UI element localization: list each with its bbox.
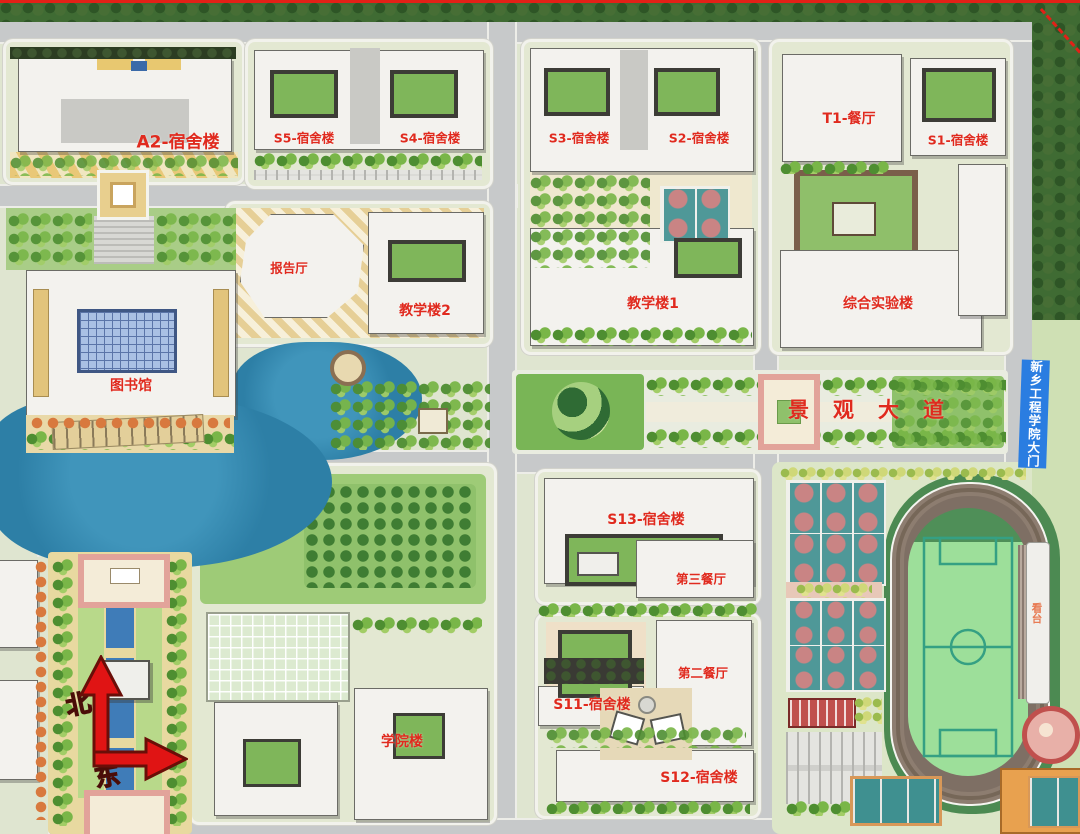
basketball-courts-north xyxy=(786,480,886,586)
label-a2: A2-宿舍楼 xyxy=(136,128,219,153)
avenue-swirl-park xyxy=(516,374,644,450)
block-lecture-teaching2 xyxy=(228,204,490,344)
pavilion-core xyxy=(110,568,140,584)
soccer-pitch-markings xyxy=(910,532,1026,762)
building-connector xyxy=(620,50,648,150)
college-west-court xyxy=(243,739,301,787)
axis-plaza xyxy=(97,170,149,220)
campus-map: 新乡工程学院大门 xyxy=(0,0,1080,834)
round-plaza-southeast xyxy=(1022,706,1080,764)
west-edge-orange-trees xyxy=(34,560,48,820)
forecourt-trees xyxy=(156,212,236,266)
forecourt-steps xyxy=(94,216,154,264)
pavilion-shrubs xyxy=(854,696,882,724)
s1-courtyard xyxy=(922,68,996,122)
lakeside-pavilion xyxy=(418,408,448,434)
south-trees xyxy=(530,326,752,346)
label-s5: S5-宿舍楼 xyxy=(274,128,334,147)
sports-north-trees xyxy=(780,466,1026,480)
label-s11: S11-宿舍楼 xyxy=(553,694,630,714)
building-west-edge-north xyxy=(0,560,38,648)
right-boundary-trees xyxy=(1032,20,1080,320)
forecourt-trees xyxy=(8,212,92,266)
block-s5-s4-dormitory xyxy=(248,42,490,186)
building-west-edge-south xyxy=(0,680,38,780)
round-plaza-core xyxy=(1039,723,1053,737)
indoor-courts xyxy=(1028,776,1080,828)
building-college-east xyxy=(354,688,488,820)
label-s4: S4-宿舍楼 xyxy=(400,128,460,147)
terrace-orange-trees xyxy=(30,416,230,432)
garden-inner-court xyxy=(832,202,876,236)
swirl-garden xyxy=(552,382,610,440)
teaching2-courtyard xyxy=(388,240,466,282)
label-teaching2: 教学楼2 xyxy=(399,300,451,320)
walkway-planters xyxy=(796,582,872,598)
road-top xyxy=(0,20,1080,42)
round-plaza xyxy=(330,350,366,386)
park-orchard xyxy=(304,484,476,588)
label-s12: S12-宿舍楼 xyxy=(660,767,737,787)
building-southeast-courts xyxy=(1000,768,1080,834)
block-trees xyxy=(254,152,482,169)
s11-deck xyxy=(544,658,644,684)
entrance-door xyxy=(131,61,147,71)
top-boundary-trees xyxy=(0,0,1080,22)
lakeside-trees xyxy=(330,380,490,450)
s2-courtyard xyxy=(654,68,720,116)
red-pavilion xyxy=(788,698,856,728)
building-college-west xyxy=(214,702,338,816)
parking-strip xyxy=(254,170,482,180)
label-t1: T1-餐厅 xyxy=(822,108,875,128)
library-colonnade xyxy=(213,289,229,397)
gate-banner-label: 新乡工程学院大门 xyxy=(1023,360,1046,469)
library-colonnade xyxy=(33,289,49,397)
label-grandstand: 看台 xyxy=(1030,603,1045,624)
plaza-fountain xyxy=(638,696,656,714)
top-boundary-line xyxy=(0,0,1080,3)
mid-tree-band xyxy=(538,602,758,617)
building-connector xyxy=(350,48,380,144)
label-s13: S13-宿舍楼 xyxy=(607,509,684,529)
mid-trees xyxy=(352,616,482,634)
library-glass-roof xyxy=(77,309,177,373)
greenhouse-building xyxy=(206,612,350,702)
entrance-canopy xyxy=(145,59,181,70)
gate-banner: 新乡工程学院大门 xyxy=(1018,360,1050,469)
axis-plaza-inner xyxy=(110,182,136,208)
basketball-courts xyxy=(660,186,730,243)
road-horizontal-west xyxy=(0,186,516,206)
basketball-courts-south xyxy=(786,598,886,692)
courtyard-kiosk xyxy=(577,552,619,576)
compass-arrows xyxy=(58,655,188,805)
block-trees xyxy=(780,160,890,174)
label-teaching1: 教学楼1 xyxy=(627,293,679,313)
label-s3: S3-宿舍楼 xyxy=(549,128,609,147)
hedge xyxy=(10,47,236,59)
plaza-trees xyxy=(546,726,746,748)
teaching1-courtyard xyxy=(674,238,742,278)
label-canteen2: 第二餐厅 xyxy=(678,663,728,682)
label-lecture-hall: 报告厅 xyxy=(270,258,308,277)
label-library: 图书馆 xyxy=(110,375,152,395)
entrance-canopy xyxy=(97,59,133,70)
s5-courtyard xyxy=(270,70,338,118)
s4-courtyard xyxy=(390,70,458,118)
south-trees xyxy=(546,800,750,814)
tennis-courts xyxy=(850,776,942,826)
north-arrow xyxy=(81,657,121,763)
label-canteen3: 第三餐厅 xyxy=(676,569,726,588)
building-s1-south-wing xyxy=(958,164,1006,316)
label-s1: S1-宿舍楼 xyxy=(928,130,988,149)
label-avenue: 景观大道 xyxy=(788,394,968,424)
s3-courtyard xyxy=(544,68,610,116)
grandstand-steps xyxy=(1018,545,1026,699)
plaza-trees xyxy=(530,174,650,268)
label-s2: S2-宿舍楼 xyxy=(669,128,729,147)
block-a2-dormitory xyxy=(6,42,242,182)
north-pavilion xyxy=(78,554,170,608)
label-college: 学院楼 xyxy=(381,731,423,751)
label-lab: 综合实验楼 xyxy=(843,293,913,313)
